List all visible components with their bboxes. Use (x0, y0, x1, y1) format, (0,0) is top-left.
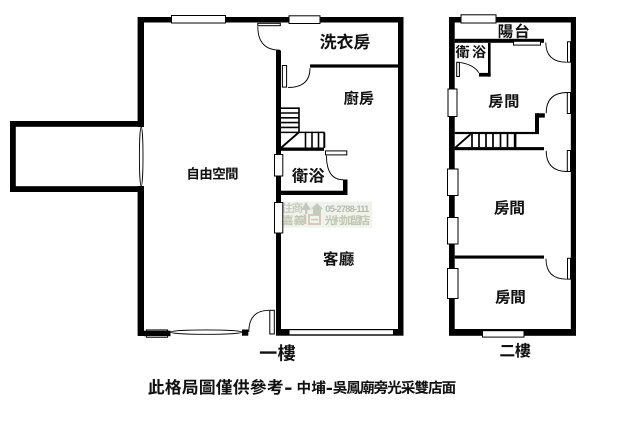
svg-text:05-2788-111: 05-2788-111 (325, 204, 369, 214)
